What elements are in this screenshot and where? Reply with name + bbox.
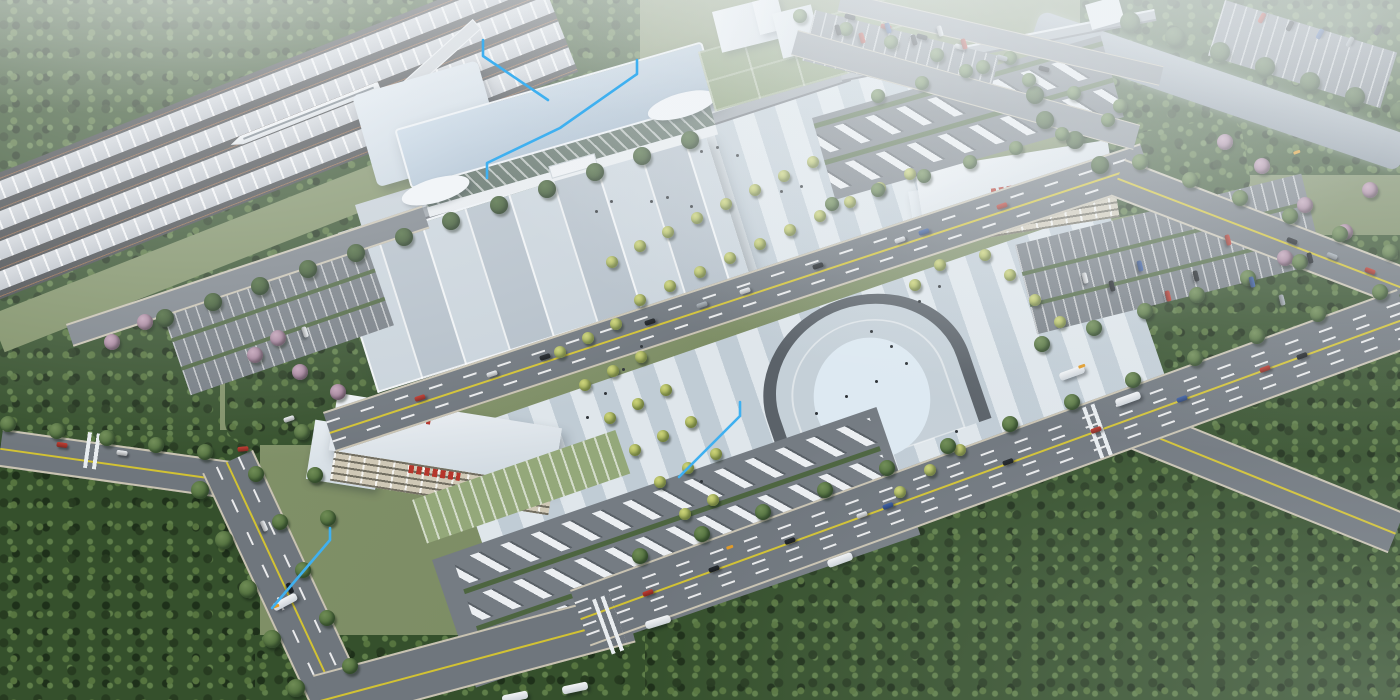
annotation-leader-line: [487, 60, 637, 178]
annotation-leader-line: [483, 40, 548, 100]
aerial-station-rendering: [0, 0, 1400, 700]
annotation-leader-line: [272, 528, 330, 608]
annotation-leader-line: [679, 402, 740, 477]
annotation-layer: [0, 0, 1400, 700]
